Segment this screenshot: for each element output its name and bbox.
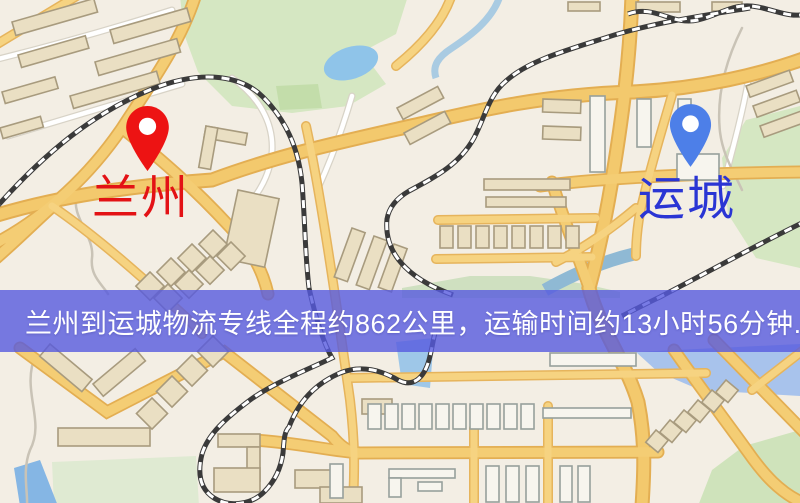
map-pin-icon [123, 105, 172, 172]
map-view[interactable]: 兰州到运城物流专线全程约862公里，运输时间约13小时56分钟. 兰州 运城 [0, 0, 800, 503]
destination-pin[interactable] [667, 103, 714, 168]
buildings-layer [0, 0, 800, 503]
destination-label: 运城 [638, 177, 736, 224]
origin-pin[interactable] [123, 105, 172, 172]
route-info-banner: 兰州到运城物流专线全程约862公里，运输时间约13小时56分钟. [0, 290, 800, 352]
route-info-text: 兰州到运城物流专线全程约862公里，运输时间约13小时56分钟. [25, 302, 800, 341]
map-graphic [0, 0, 800, 503]
origin-label: 兰州 [92, 176, 190, 223]
map-pin-icon [667, 103, 714, 168]
